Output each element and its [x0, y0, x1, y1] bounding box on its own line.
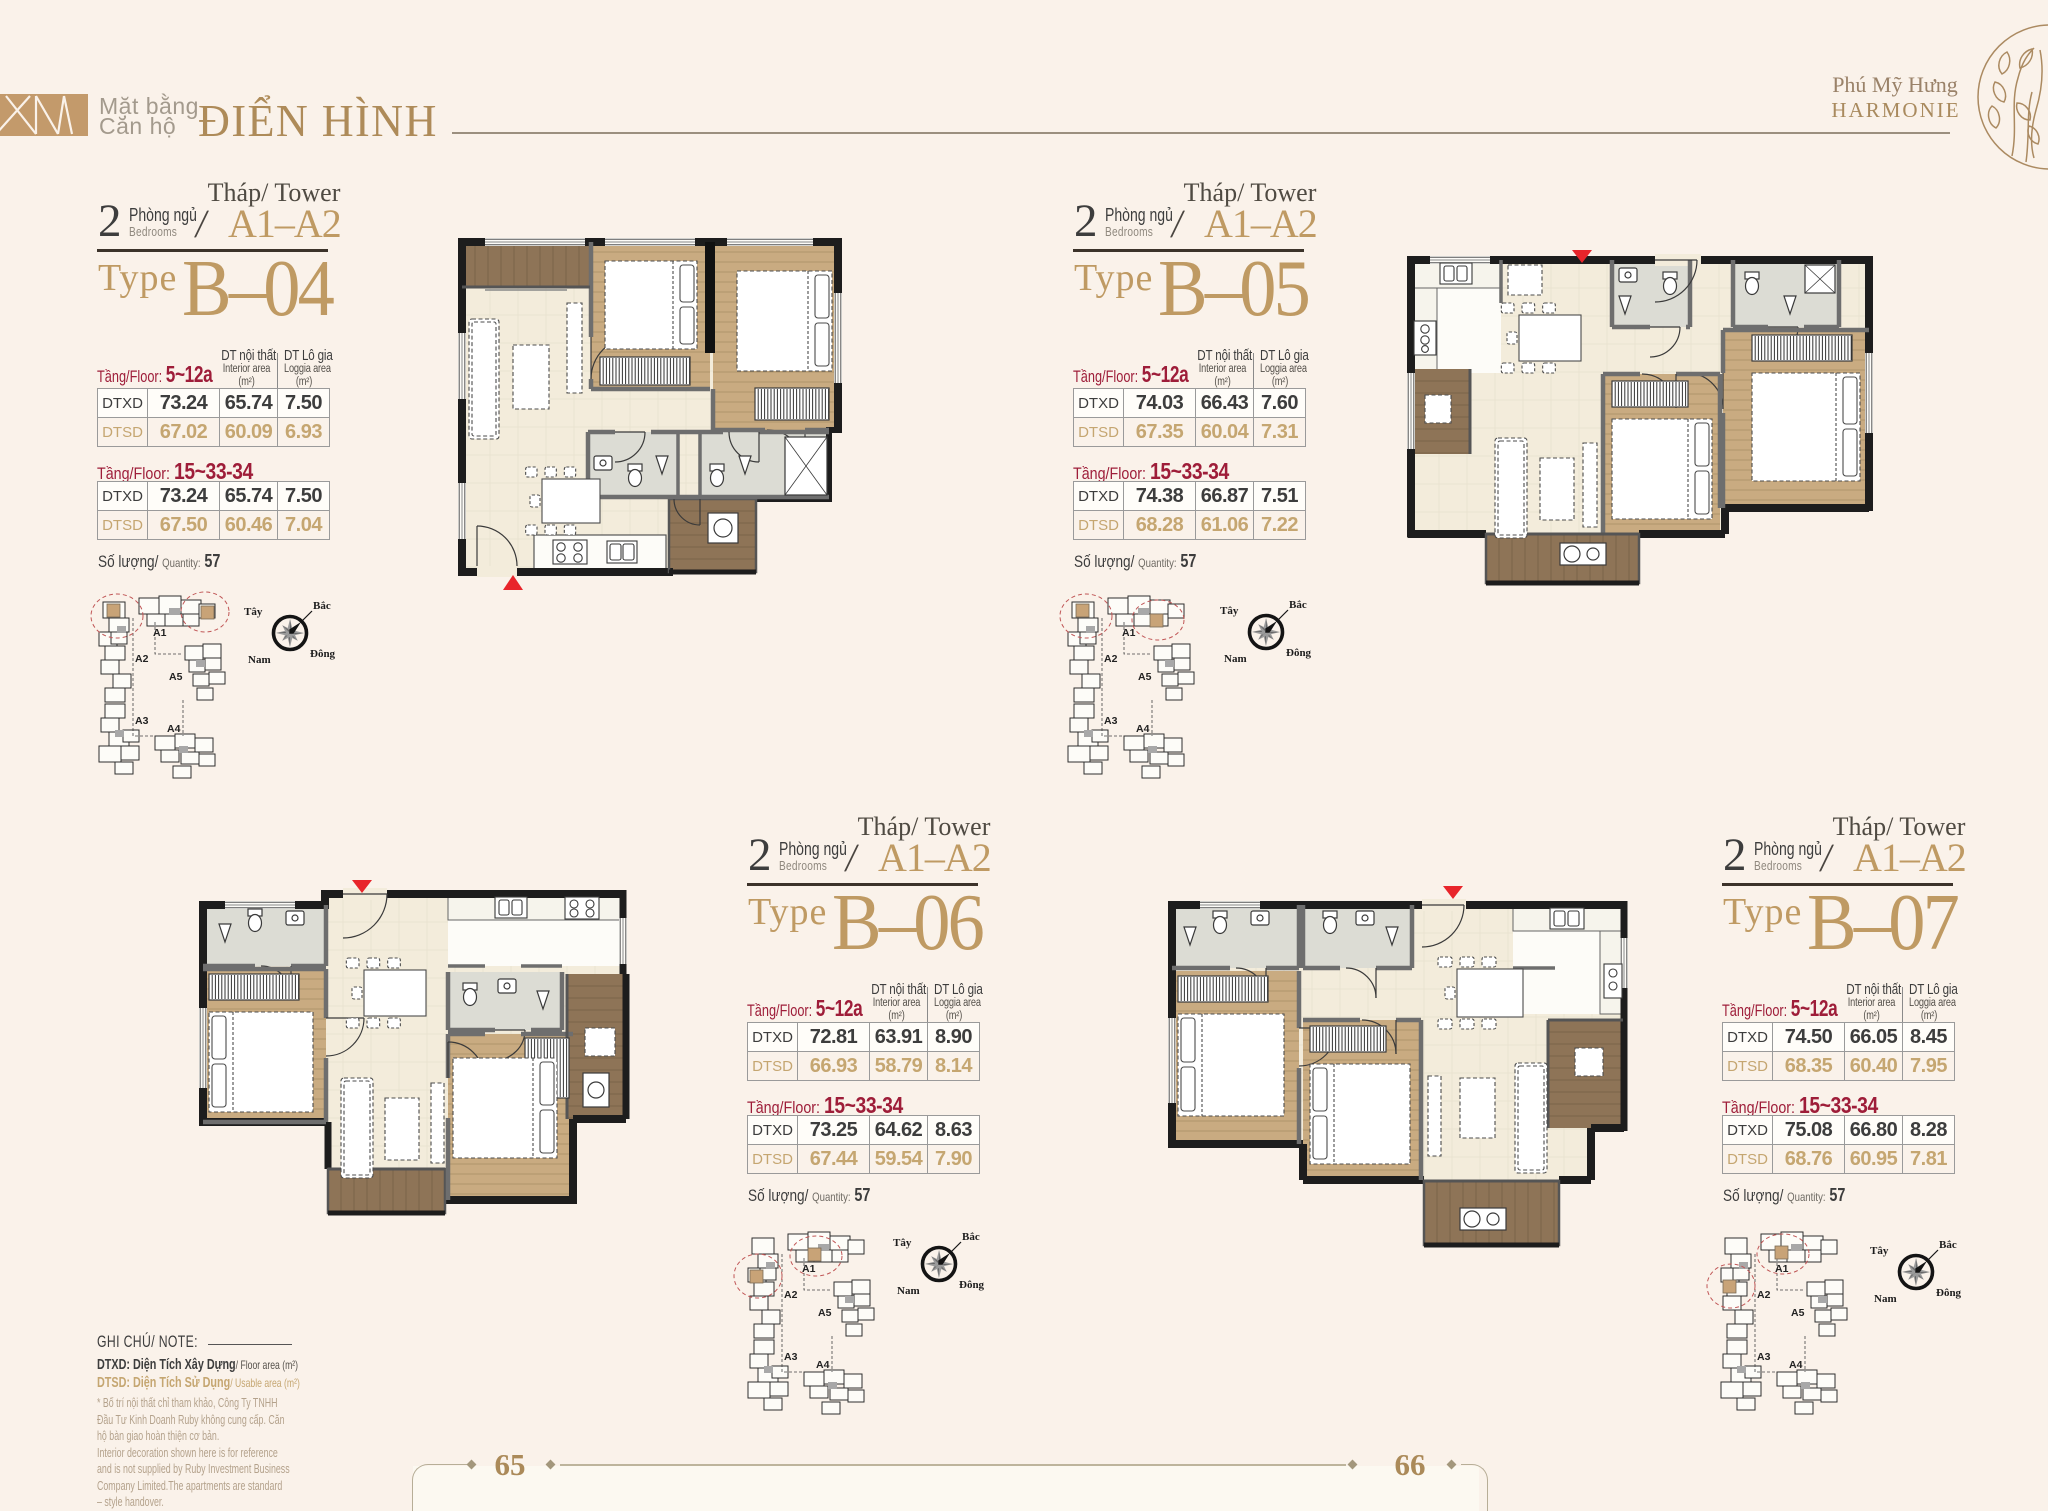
svg-text:A2: A2	[1757, 1289, 1771, 1301]
svg-text:A4: A4	[167, 723, 181, 735]
svg-text:Đông: Đông	[1286, 647, 1312, 659]
svg-text:Đông: Đông	[310, 648, 336, 660]
svg-text:A3: A3	[1757, 1351, 1771, 1363]
svg-text:A2: A2	[1104, 653, 1118, 665]
svg-text:Đông: Đông	[1936, 1287, 1962, 1299]
svg-text:Nam: Nam	[1224, 653, 1247, 665]
svg-text:Đông: Đông	[959, 1279, 985, 1291]
svg-text:Tây: Tây	[1220, 605, 1239, 617]
svg-text:A2: A2	[135, 653, 149, 665]
svg-text:A5: A5	[1791, 1307, 1805, 1319]
svg-text:A3: A3	[135, 715, 149, 727]
svg-text:Bắc: Bắc	[962, 1231, 980, 1243]
svg-text:A4: A4	[816, 1359, 830, 1371]
svg-text:Nam: Nam	[248, 654, 271, 666]
svg-text:A1: A1	[802, 1263, 816, 1275]
svg-text:A5: A5	[818, 1307, 832, 1319]
svg-text:Nam: Nam	[897, 1285, 920, 1297]
svg-text:Tây: Tây	[1870, 1245, 1889, 1257]
svg-text:A1: A1	[153, 627, 167, 639]
svg-text:Tây: Tây	[244, 606, 263, 618]
svg-text:A3: A3	[1104, 715, 1118, 727]
svg-text:Tây: Tây	[893, 1237, 912, 1249]
svg-text:A5: A5	[1138, 671, 1152, 683]
svg-text:Bắc: Bắc	[1289, 599, 1307, 611]
svg-text:A2: A2	[784, 1289, 798, 1301]
svg-text:Nam: Nam	[1874, 1293, 1897, 1305]
svg-text:A1: A1	[1775, 1263, 1789, 1275]
svg-text:A3: A3	[784, 1351, 798, 1363]
svg-text:A4: A4	[1789, 1359, 1803, 1371]
svg-text:Bắc: Bắc	[1939, 1239, 1957, 1251]
svg-text:A5: A5	[169, 671, 183, 683]
svg-text:A1: A1	[1122, 627, 1136, 639]
svg-text:A4: A4	[1136, 723, 1150, 735]
svg-text:Bắc: Bắc	[313, 600, 331, 612]
